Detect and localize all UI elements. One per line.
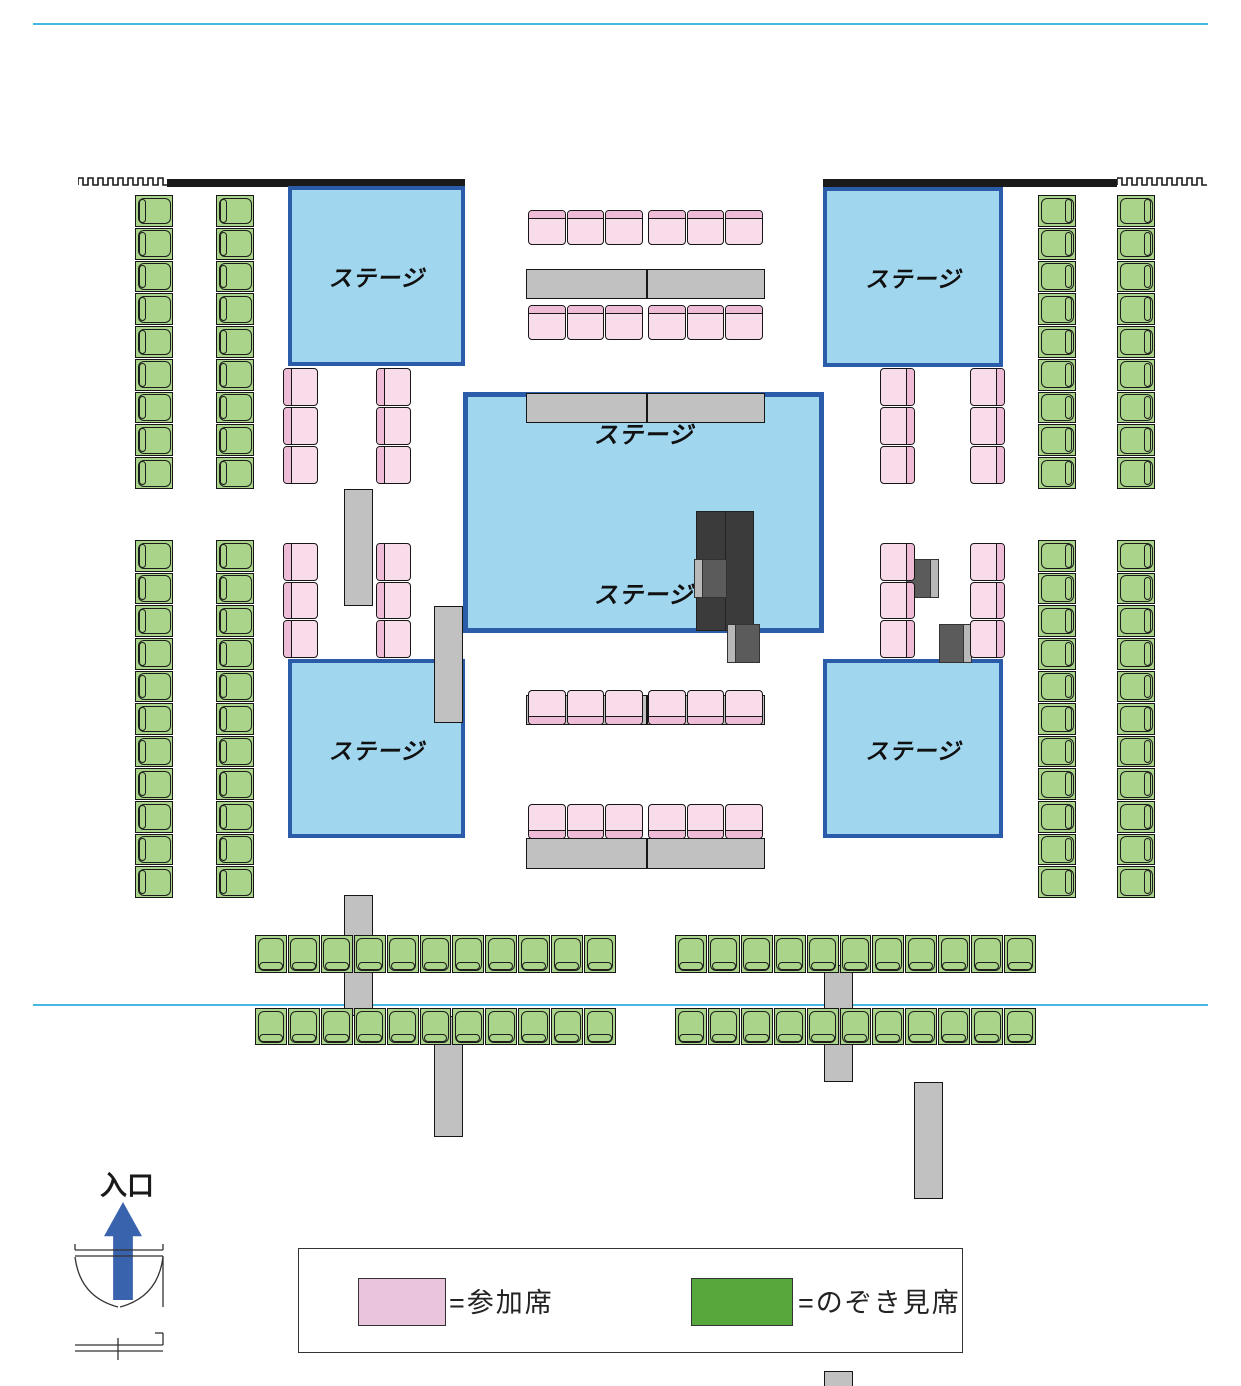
green-seat <box>452 935 484 973</box>
pink-seat <box>687 690 725 725</box>
green-seat <box>1117 228 1155 260</box>
green-seat <box>135 228 173 260</box>
pink-seat-column <box>376 368 411 484</box>
pink-seat <box>648 210 686 245</box>
green-seat <box>1038 392 1076 424</box>
legend-swatch-peek <box>691 1278 793 1326</box>
green-seat <box>1117 703 1155 735</box>
wall-hatch-left-icon <box>78 176 168 187</box>
pink-seat <box>725 804 763 839</box>
green-seat <box>1038 671 1076 703</box>
green-seat-row <box>255 935 616 973</box>
middle-rule-line <box>33 1004 1208 1006</box>
green-seat <box>518 935 550 973</box>
green-seat <box>216 457 254 489</box>
green-seat <box>452 1008 484 1045</box>
pink-seat-row <box>528 210 643 245</box>
green-seat-row <box>675 935 1036 973</box>
green-seat <box>774 1008 806 1045</box>
pink-seat <box>880 446 915 484</box>
pink-seat <box>283 620 318 658</box>
stage-label: ステージ <box>865 260 961 294</box>
green-seat <box>135 605 173 637</box>
green-seat <box>321 1008 353 1045</box>
entrance-label: 入口 <box>85 1164 169 1203</box>
table-vertical <box>914 1082 943 1199</box>
green-seat <box>1038 834 1076 866</box>
green-seat <box>675 1008 707 1045</box>
green-seat <box>1117 424 1155 456</box>
stage-label: ステージ <box>865 732 961 766</box>
green-seat <box>971 935 1003 973</box>
stage-label: ステージ <box>329 732 425 766</box>
green-seat <box>1117 392 1155 424</box>
pink-seat <box>567 690 605 725</box>
green-seat <box>216 293 254 325</box>
table-row <box>526 838 765 869</box>
green-seat <box>1117 359 1155 391</box>
pink-seat-row <box>528 305 643 340</box>
pink-seat-column <box>880 368 915 484</box>
legend: =参加席 =のぞき見席 <box>298 1248 963 1353</box>
green-seat <box>551 1008 583 1045</box>
green-seat <box>1038 457 1076 489</box>
green-seat-column-bottom-right-1 <box>1038 540 1076 898</box>
green-seat <box>1038 359 1076 391</box>
pink-seat <box>648 804 686 839</box>
green-seat <box>1038 195 1076 227</box>
green-seat <box>135 540 173 572</box>
top-rule-line <box>33 23 1208 25</box>
green-seat <box>216 326 254 358</box>
pink-seat-column <box>970 543 1005 658</box>
green-seat <box>216 605 254 637</box>
green-seat <box>807 1008 839 1045</box>
pink-seat <box>376 620 411 658</box>
green-seat <box>1038 866 1076 898</box>
green-seat <box>1038 573 1076 605</box>
pink-seat <box>880 582 915 620</box>
green-seat <box>1117 834 1155 866</box>
pink-seat <box>970 368 1005 406</box>
green-seat <box>938 935 970 973</box>
green-seat <box>216 801 254 833</box>
pink-seat <box>687 804 725 839</box>
stage-top-left: ステージ <box>288 186 465 366</box>
pink-seat-row <box>648 690 763 725</box>
green-seat <box>1117 195 1155 227</box>
green-seat <box>135 261 173 293</box>
green-seat <box>216 736 254 768</box>
pink-seat <box>880 407 915 445</box>
legend-label-peek: =のぞき見席 <box>798 1249 961 1352</box>
green-seat <box>216 228 254 260</box>
green-seat <box>135 573 173 605</box>
green-seat-column-top-right-1 <box>1038 195 1076 489</box>
chair-left-top <box>694 559 727 598</box>
legend-label-participation: =参加席 <box>449 1249 554 1352</box>
pink-seat <box>880 543 915 581</box>
green-seat <box>135 801 173 833</box>
pink-seat <box>567 305 605 340</box>
green-seat <box>1038 424 1076 456</box>
green-seat <box>1117 768 1155 800</box>
green-seat <box>354 1008 386 1045</box>
green-seat <box>485 935 517 973</box>
green-seat <box>551 935 583 973</box>
green-seat <box>1038 261 1076 293</box>
pink-seat <box>528 690 566 725</box>
pink-seat <box>376 582 411 620</box>
pink-seat <box>283 446 318 484</box>
green-seat <box>1038 703 1076 735</box>
green-seat-column-bottom-left-1 <box>135 540 173 898</box>
green-seat <box>1117 605 1155 637</box>
stage-label-bottom: ステージ <box>468 575 819 610</box>
pink-seat-column <box>880 543 915 658</box>
green-seat <box>288 935 320 973</box>
green-seat <box>216 638 254 670</box>
pink-seat <box>376 368 411 406</box>
pink-seat-column <box>283 543 318 658</box>
pink-seat <box>567 210 605 245</box>
green-seat <box>321 935 353 973</box>
green-seat <box>584 1008 616 1045</box>
green-seat <box>905 1008 937 1045</box>
pink-seat-row <box>528 804 643 839</box>
wall-hatch-right-icon <box>1117 176 1207 187</box>
table-vertical <box>344 489 373 606</box>
green-seat-column-bottom-right-2 <box>1117 540 1155 898</box>
pink-seat <box>970 543 1005 581</box>
green-seat <box>1117 540 1155 572</box>
green-seat <box>216 573 254 605</box>
pink-seat <box>970 620 1005 658</box>
green-seat <box>135 866 173 898</box>
green-seat <box>1038 326 1076 358</box>
pink-seat <box>528 804 566 839</box>
green-seat-column-top-right-2 <box>1117 195 1155 489</box>
green-seat <box>1038 605 1076 637</box>
green-seat <box>216 866 254 898</box>
green-seat <box>135 392 173 424</box>
green-seat <box>216 261 254 293</box>
green-seat <box>1038 540 1076 572</box>
green-seat-row <box>675 1008 1036 1045</box>
green-seat <box>135 359 173 391</box>
green-seat-row <box>255 1008 616 1045</box>
pink-seat <box>376 543 411 581</box>
green-seat <box>741 935 773 973</box>
green-seat <box>1038 638 1076 670</box>
pink-seat-row <box>648 210 763 245</box>
chair-left-bottom <box>727 624 760 663</box>
green-seat <box>135 671 173 703</box>
green-seat <box>840 935 872 973</box>
pink-seat <box>648 690 686 725</box>
green-seat <box>741 1008 773 1045</box>
green-seat <box>708 935 740 973</box>
entrance-door-icon <box>65 1243 180 1368</box>
green-seat <box>1004 935 1036 973</box>
pink-seat <box>970 407 1005 445</box>
green-seat <box>1038 801 1076 833</box>
green-seat <box>135 834 173 866</box>
green-seat <box>135 424 173 456</box>
pink-seat <box>283 368 318 406</box>
green-seat <box>1117 293 1155 325</box>
pink-seat-column <box>970 368 1005 484</box>
pink-seat-column <box>283 368 318 484</box>
green-seat <box>216 195 254 227</box>
table-vertical <box>434 606 463 723</box>
green-seat <box>420 935 452 973</box>
stage-bottom-right: ステージ <box>823 659 1003 838</box>
stage-center: ステージ ステージ <box>463 392 824 633</box>
green-seat <box>216 359 254 391</box>
green-seat <box>387 1008 419 1045</box>
table-row <box>526 269 765 299</box>
green-seat <box>1038 736 1076 768</box>
chair-right-bottom <box>939 624 972 663</box>
green-seat-column-bottom-left-2 <box>216 540 254 898</box>
green-seat <box>216 540 254 572</box>
table-row <box>526 393 765 423</box>
pink-seat <box>648 305 686 340</box>
green-seat <box>354 935 386 973</box>
green-seat <box>1038 768 1076 800</box>
pink-seat-column <box>376 543 411 658</box>
green-seat <box>1117 326 1155 358</box>
green-seat <box>1117 671 1155 703</box>
green-seat <box>938 1008 970 1045</box>
pink-seat <box>725 305 763 340</box>
pink-seat <box>725 690 763 725</box>
green-seat <box>1117 573 1155 605</box>
pink-seat <box>605 690 643 725</box>
pink-seat <box>605 210 643 245</box>
pink-seat-row <box>528 690 643 725</box>
pink-seat <box>970 446 1005 484</box>
green-seat <box>255 935 287 973</box>
green-seat <box>216 392 254 424</box>
green-seat <box>216 768 254 800</box>
green-seat <box>135 457 173 489</box>
wall-top-right <box>823 179 1117 187</box>
green-seat <box>1117 261 1155 293</box>
green-seat <box>135 293 173 325</box>
green-seat <box>216 834 254 866</box>
pink-seat <box>283 407 318 445</box>
pink-seat-row <box>648 305 763 340</box>
pink-seat <box>283 543 318 581</box>
pink-seat <box>567 804 605 839</box>
green-seat <box>255 1008 287 1045</box>
green-seat <box>518 1008 550 1045</box>
green-seat <box>584 935 616 973</box>
green-seat <box>1117 866 1155 898</box>
green-seat <box>387 935 419 973</box>
stage-top-right: ステージ <box>823 187 1003 367</box>
pink-seat <box>605 305 643 340</box>
green-seat <box>905 935 937 973</box>
stage-label: ステージ <box>329 259 425 293</box>
green-seat <box>216 671 254 703</box>
green-seat <box>708 1008 740 1045</box>
pink-seat <box>687 210 725 245</box>
green-seat <box>971 1008 1003 1045</box>
green-seat <box>420 1008 452 1045</box>
table-vertical <box>824 1371 853 1386</box>
green-seat <box>1117 801 1155 833</box>
green-seat <box>807 935 839 973</box>
green-seat-column-top-left-1 <box>135 195 173 489</box>
green-seat <box>1038 293 1076 325</box>
green-seat <box>216 424 254 456</box>
green-seat <box>872 1008 904 1045</box>
green-seat <box>1117 457 1155 489</box>
green-seat <box>216 703 254 735</box>
pink-seat <box>376 407 411 445</box>
green-seat <box>1038 228 1076 260</box>
pink-seat <box>283 582 318 620</box>
green-seat <box>485 1008 517 1045</box>
pink-seat <box>880 368 915 406</box>
green-seat <box>135 703 173 735</box>
green-seat <box>1004 1008 1036 1045</box>
green-seat <box>675 935 707 973</box>
legend-swatch-participation <box>358 1278 446 1326</box>
pink-seat <box>687 305 725 340</box>
floor-plan: ステージ ステージ ステージ ステージ ステージ ステージ <box>0 0 1241 1386</box>
pink-seat <box>970 582 1005 620</box>
pink-seat <box>605 804 643 839</box>
green-seat <box>288 1008 320 1045</box>
green-seat <box>135 768 173 800</box>
green-seat <box>135 736 173 768</box>
pink-seat-row <box>648 804 763 839</box>
green-seat <box>840 1008 872 1045</box>
pink-seat <box>528 305 566 340</box>
pink-seat <box>880 620 915 658</box>
pink-seat <box>528 210 566 245</box>
green-seat <box>135 638 173 670</box>
green-seat-column-top-left-2 <box>216 195 254 489</box>
pink-seat <box>725 210 763 245</box>
green-seat <box>872 935 904 973</box>
green-seat <box>1117 736 1155 768</box>
green-seat <box>1117 638 1155 670</box>
pink-seat <box>376 446 411 484</box>
green-seat <box>135 326 173 358</box>
green-seat <box>774 935 806 973</box>
green-seat <box>135 195 173 227</box>
